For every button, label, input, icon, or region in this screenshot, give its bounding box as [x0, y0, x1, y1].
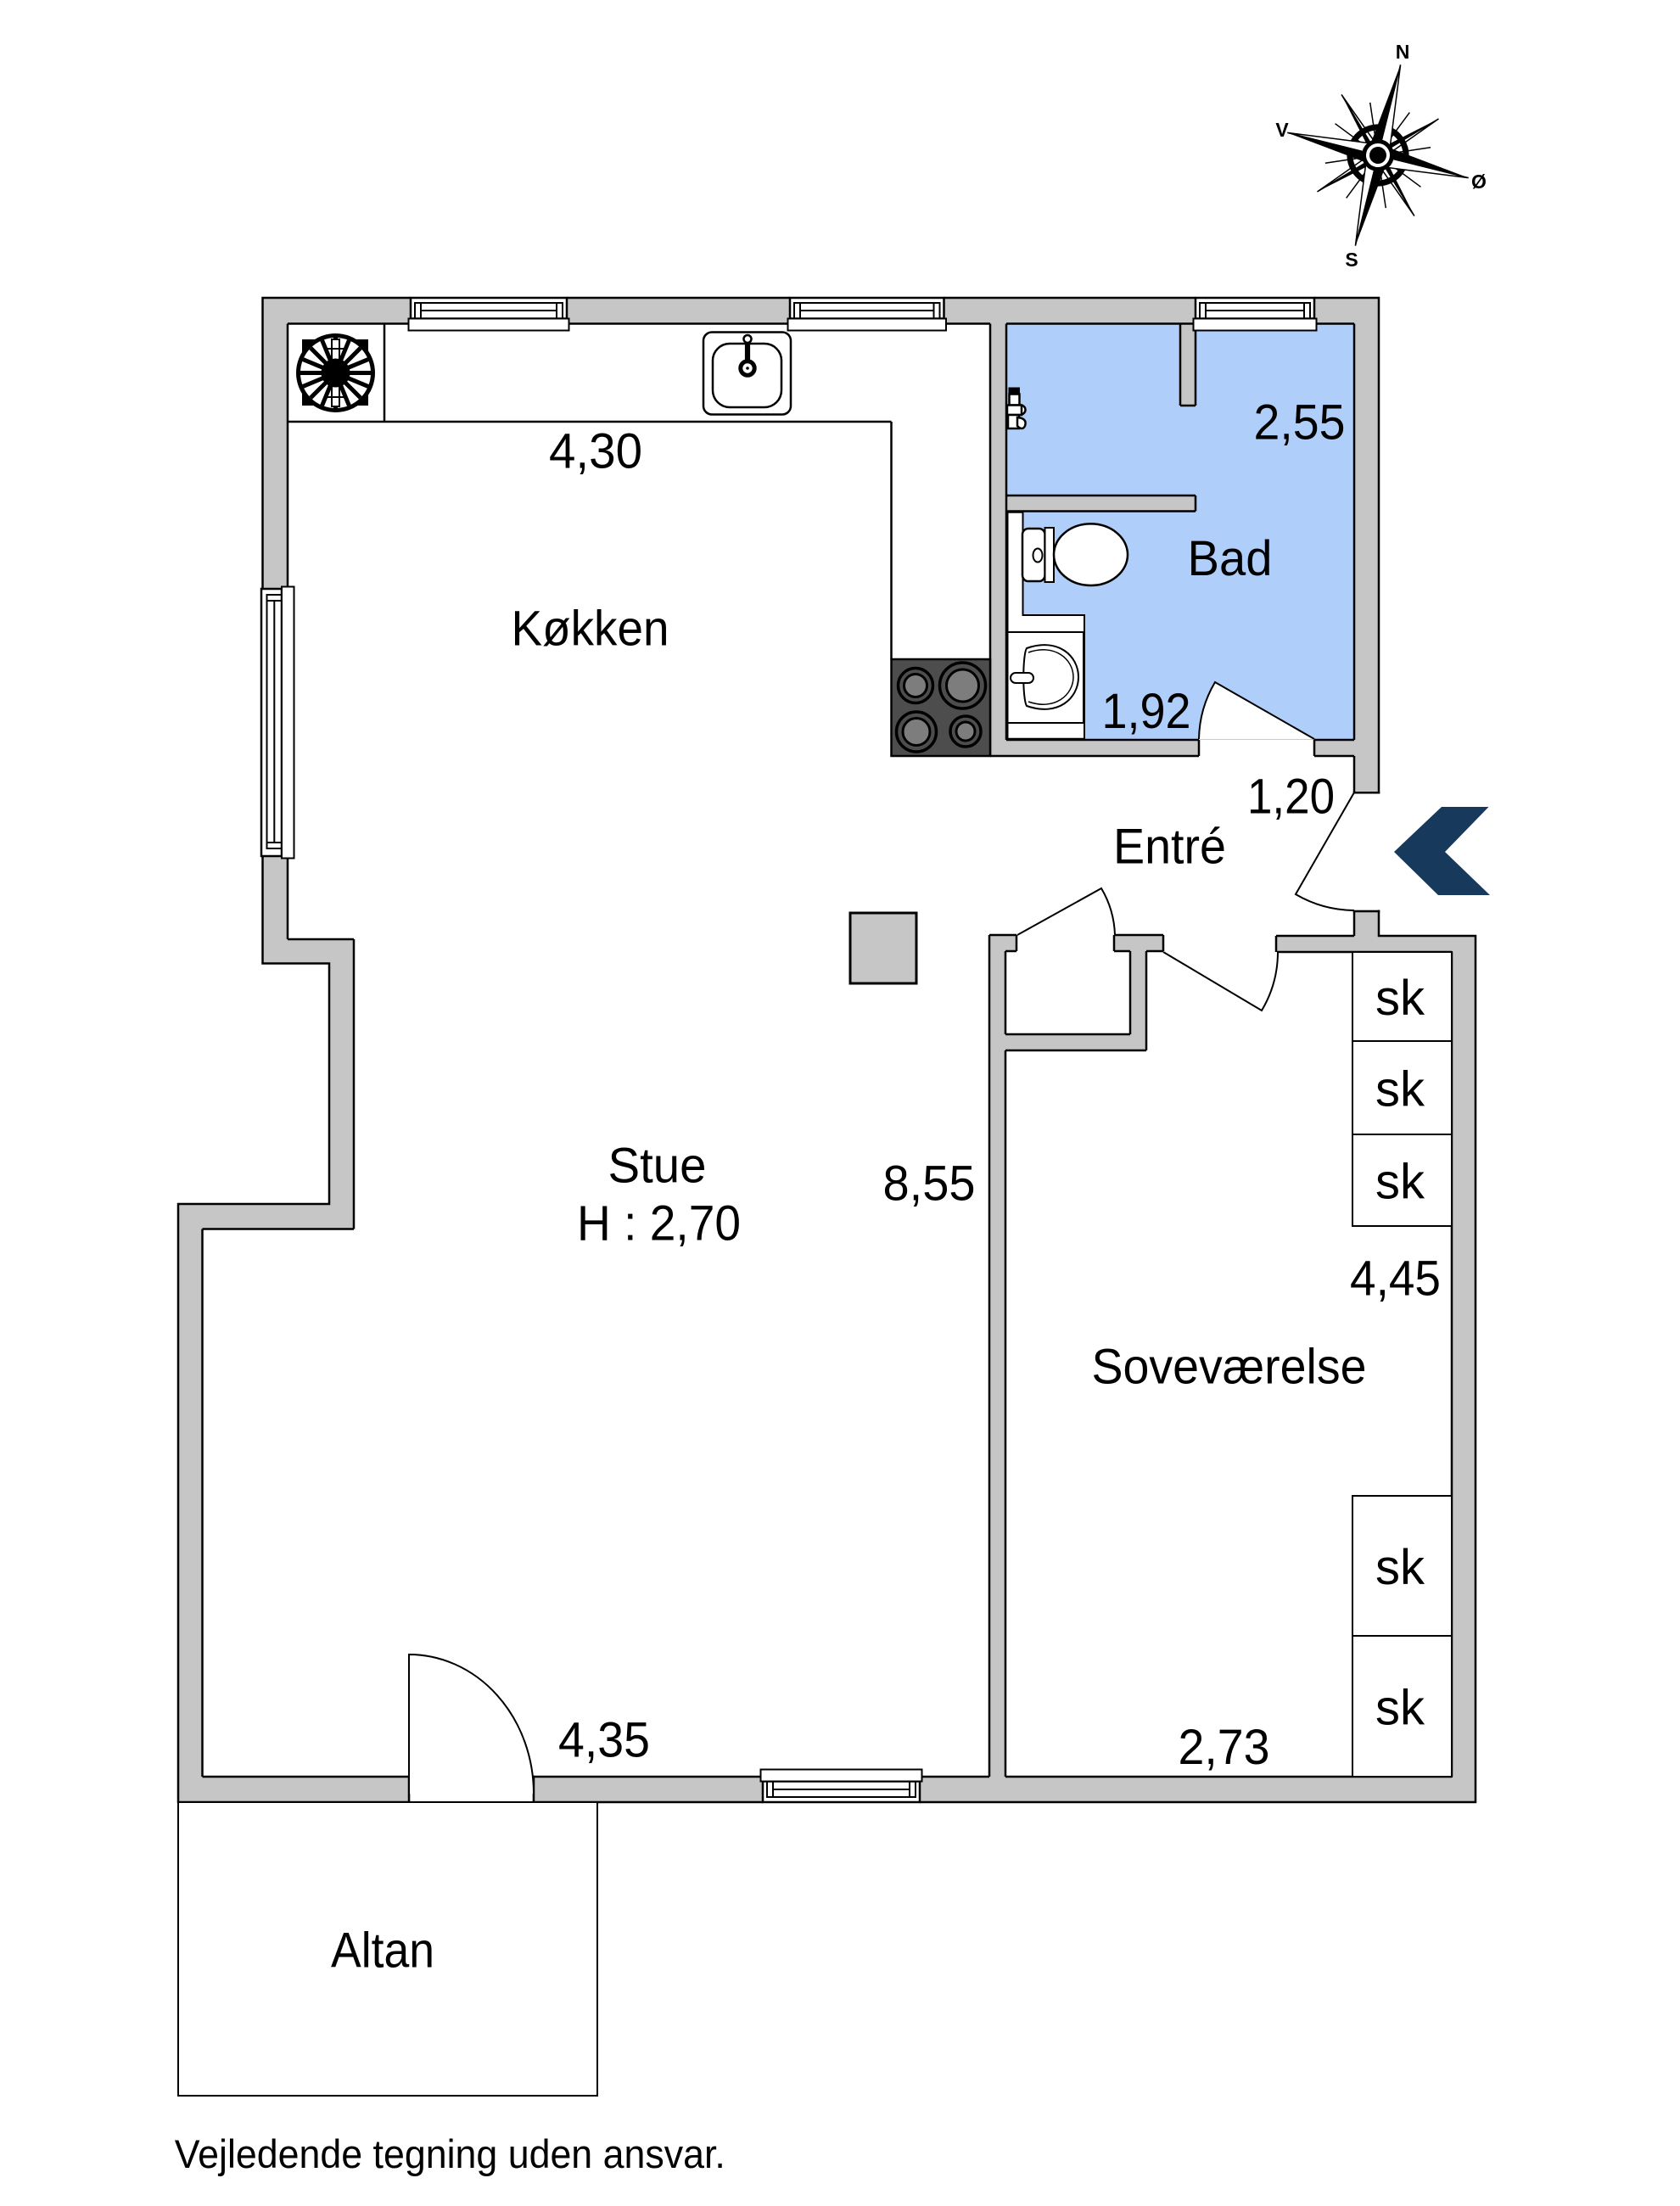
- svg-text:4,45: 4,45: [1350, 1251, 1441, 1307]
- svg-text:2,55: 2,55: [1254, 395, 1346, 451]
- svg-text:sk: sk: [1375, 1155, 1425, 1210]
- svg-text:Stue: Stue: [608, 1139, 707, 1194]
- svg-text:Ø: Ø: [1471, 171, 1487, 193]
- svg-text:1,20: 1,20: [1247, 770, 1335, 825]
- svg-text:4,35: 4,35: [558, 1713, 650, 1768]
- svg-text:Vejledende tegning uden ansvar: Vejledende tegning uden ansvar.: [175, 2131, 725, 2176]
- svg-text:4,30: 4,30: [549, 424, 642, 479]
- svg-text:sk: sk: [1375, 971, 1425, 1026]
- svg-text:8,55: 8,55: [883, 1156, 976, 1212]
- svg-text:N: N: [1396, 41, 1410, 63]
- svg-text:Bad: Bad: [1188, 531, 1273, 586]
- svg-text:S: S: [1345, 249, 1358, 271]
- svg-text:Soveværelse: Soveværelse: [1092, 1340, 1367, 1395]
- svg-text:sk: sk: [1375, 1062, 1425, 1117]
- svg-text:Entré: Entré: [1113, 820, 1226, 875]
- svg-text:V: V: [1275, 119, 1289, 141]
- svg-text:2,73: 2,73: [1179, 1720, 1270, 1775]
- svg-text:1,92: 1,92: [1102, 684, 1191, 739]
- svg-text:sk: sk: [1375, 1681, 1425, 1736]
- svg-text:H : 2,70: H : 2,70: [577, 1196, 741, 1251]
- svg-text:Køkken: Køkken: [512, 602, 669, 657]
- svg-text:Altan: Altan: [331, 1923, 434, 1979]
- svg-text:sk: sk: [1375, 1540, 1425, 1595]
